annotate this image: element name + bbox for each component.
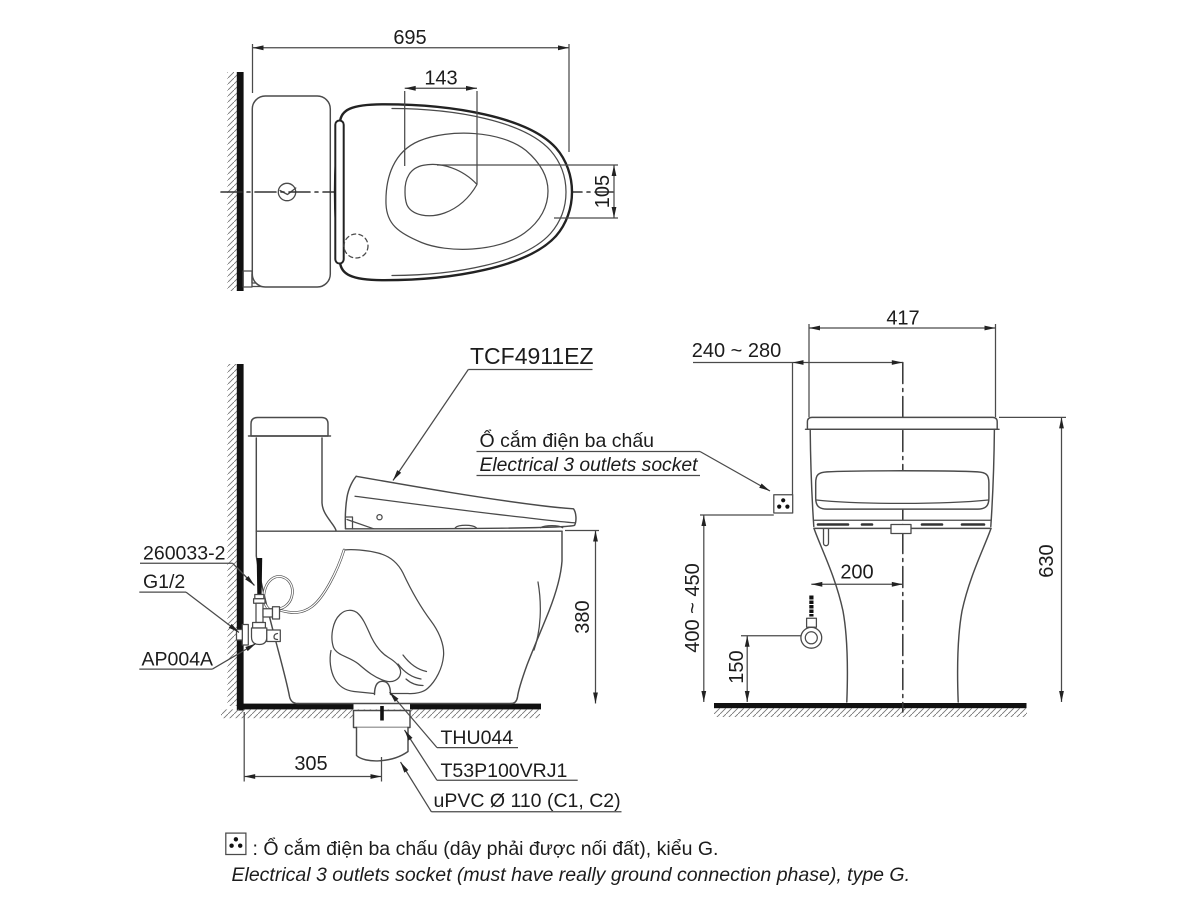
svg-text:305: 305 bbox=[294, 753, 327, 775]
svg-text:T53P100VRJ1: T53P100VRJ1 bbox=[441, 760, 568, 782]
svg-text:200: 200 bbox=[840, 562, 873, 584]
svg-text:695: 695 bbox=[393, 27, 426, 49]
svg-text:143: 143 bbox=[424, 68, 457, 90]
svg-text:AP004A: AP004A bbox=[142, 649, 214, 671]
svg-text:: Ổ cắm điện ba chấu (dây phải: : Ổ cắm điện ba chấu (dây phải được nối … bbox=[253, 836, 719, 860]
svg-text:uPVC Ø 110 (C1, C2): uPVC Ø 110 (C1, C2) bbox=[434, 790, 621, 812]
svg-text:150: 150 bbox=[726, 650, 748, 683]
svg-text:380: 380 bbox=[572, 600, 594, 633]
svg-text:105: 105 bbox=[592, 175, 614, 208]
svg-text:400 ~ 450: 400 ~ 450 bbox=[682, 563, 704, 653]
svg-text:240 ~ 280: 240 ~ 280 bbox=[692, 340, 782, 362]
svg-text:630: 630 bbox=[1036, 544, 1058, 577]
svg-text:260033-2: 260033-2 bbox=[143, 543, 225, 565]
svg-text:Ổ cắm điện ba chấu: Ổ cắm điện ba chấu bbox=[480, 428, 655, 452]
svg-text:G1/2: G1/2 bbox=[143, 571, 185, 593]
svg-text:THU044: THU044 bbox=[441, 727, 514, 749]
svg-text:TCF4911EZ: TCF4911EZ bbox=[470, 343, 594, 369]
svg-text:Electrical 3 outlets socket: Electrical 3 outlets socket bbox=[480, 454, 700, 476]
svg-text:Electrical 3 outlets socket (m: Electrical 3 outlets socket (must have r… bbox=[232, 864, 911, 886]
svg-text:417: 417 bbox=[886, 308, 919, 330]
